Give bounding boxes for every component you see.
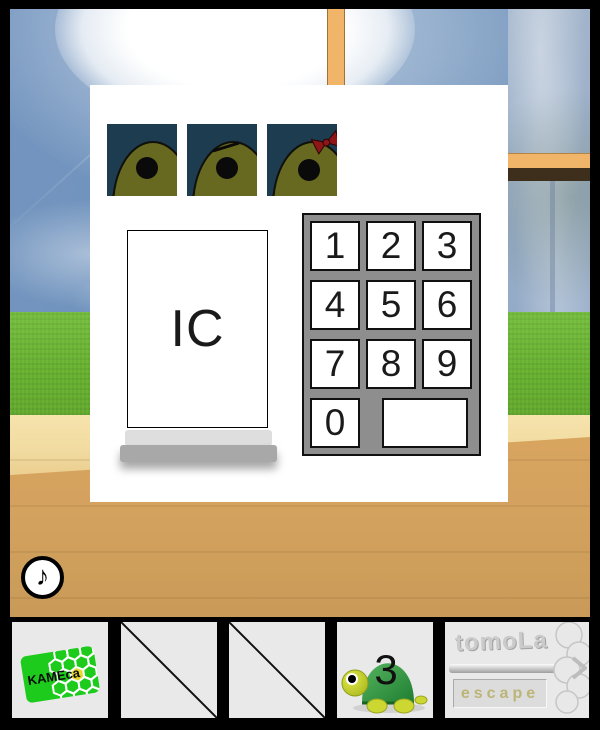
inventory-slot-kameca-card[interactable]: KAMEca xyxy=(12,622,108,718)
keypad-key-9[interactable]: 9 xyxy=(422,339,472,389)
inventory-slot-turtle[interactable]: 3 xyxy=(337,622,433,718)
keypad-key-4[interactable]: 4 xyxy=(310,280,360,330)
kame-ribbon-face-icon xyxy=(267,124,337,196)
puzzle-panel: IC 1 2 3 4 5 6 7 8 9 0 xyxy=(90,85,508,502)
turtle-icon: 3 xyxy=(337,622,433,718)
inventory-toolbar: KAMEca xyxy=(0,617,600,730)
kameca-card-icon: KAMEca xyxy=(12,622,108,718)
kame-tile-eyebrow xyxy=(187,124,257,196)
keypad-key-2[interactable]: 2 xyxy=(366,221,416,271)
keypad-key-3[interactable]: 3 xyxy=(422,221,472,271)
keypad-key-1[interactable]: 1 xyxy=(310,221,360,271)
keypad: 1 2 3 4 5 6 7 8 9 0 xyxy=(302,213,481,456)
empty-slot-diagonal xyxy=(121,622,217,718)
brand-logo-slot: tomoLa escape xyxy=(445,622,589,718)
kame-face-icon xyxy=(107,124,177,196)
kame-tile-plain xyxy=(107,124,177,196)
inventory-slot-empty-1[interactable] xyxy=(121,622,217,718)
inventory-slot-empty-2[interactable] xyxy=(229,622,325,718)
kame-eyebrow-face-icon xyxy=(187,124,257,196)
music-note-icon: ♪ xyxy=(36,563,50,590)
keypad-key-0[interactable]: 0 xyxy=(310,398,360,448)
brand-escape-text: escape xyxy=(461,685,539,703)
keypad-key-5[interactable]: 5 xyxy=(366,280,416,330)
card-stand-base xyxy=(120,445,277,462)
ic-card-label: IC xyxy=(171,299,225,359)
turtle-number-label: 3 xyxy=(374,646,397,693)
brand-tomola-text: tomoLa xyxy=(455,626,549,657)
empty-slot-diagonal xyxy=(229,622,325,718)
brand-escape-box: escape xyxy=(453,679,547,708)
keypad-key-7[interactable]: 7 xyxy=(310,339,360,389)
music-toggle-button[interactable]: ♪ xyxy=(21,556,64,599)
window-pane-divider xyxy=(550,169,555,312)
keypad-key-8[interactable]: 8 xyxy=(366,339,416,389)
keypad-key-6[interactable]: 6 xyxy=(422,280,472,330)
cloud-key-icon xyxy=(543,622,589,718)
keypad-blank-key[interactable] xyxy=(382,398,468,448)
ic-card[interactable]: IC xyxy=(127,230,268,428)
kame-tile-ribbon xyxy=(267,124,337,196)
card-stand-top xyxy=(125,430,272,446)
